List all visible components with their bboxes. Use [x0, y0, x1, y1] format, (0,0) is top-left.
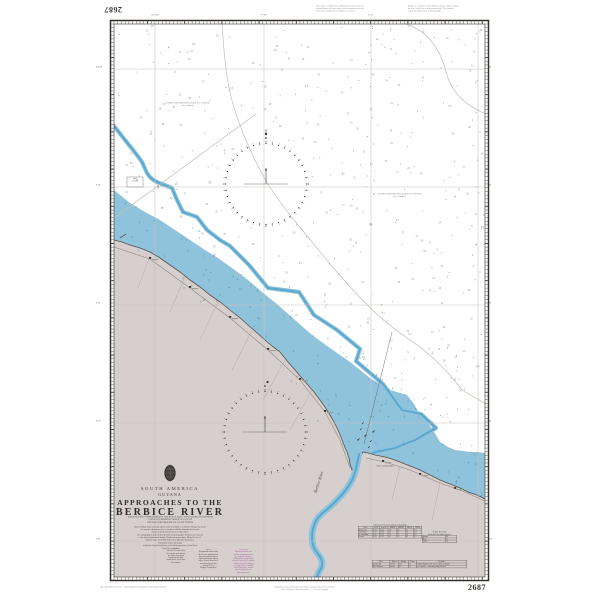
- svg-text:3: 3: [382, 379, 384, 382]
- svg-text:4: 4: [327, 337, 329, 340]
- svg-text:20: 20: [468, 289, 471, 292]
- svg-text:21: 21: [130, 153, 133, 156]
- svg-text:7: 7: [471, 445, 473, 448]
- svg-text:12: 12: [454, 379, 457, 382]
- svg-text:17: 17: [307, 46, 310, 49]
- svg-text:26: 26: [279, 125, 282, 128]
- svg-text:2: 2: [307, 122, 309, 125]
- svg-text:13: 13: [363, 358, 366, 361]
- svg-text:19: 19: [355, 208, 358, 211]
- svg-text:15: 15: [215, 210, 218, 213]
- svg-text:9: 9: [224, 150, 226, 153]
- svg-text:25: 25: [162, 123, 165, 126]
- svg-text:12: 12: [190, 50, 193, 53]
- sea-caution-label-1: BANKS AND DEPTHS LIABLE TO CHANGE(see Ca…: [153, 102, 223, 115]
- svg-text:28: 28: [265, 129, 268, 132]
- svg-text:10: 10: [180, 215, 183, 218]
- svg-text:20: 20: [269, 103, 272, 106]
- svg-text:23: 23: [448, 105, 451, 108]
- svg-text:1: 1: [207, 166, 209, 169]
- svg-text:15: 15: [384, 160, 387, 163]
- svg-text:20: 20: [252, 243, 255, 246]
- notes-general-block: NOTESNavigational marks withinthe river …: [192, 549, 224, 600]
- svg-text:4: 4: [332, 62, 334, 65]
- svg-text:15: 15: [150, 133, 153, 136]
- svg-text:11: 11: [473, 50, 476, 53]
- svg-text:24: 24: [274, 49, 277, 52]
- svg-text:4: 4: [330, 209, 332, 212]
- svg-text:2: 2: [216, 145, 218, 148]
- svg-text:12: 12: [370, 163, 373, 166]
- svg-text:11: 11: [146, 29, 149, 32]
- svg-text:13: 13: [230, 87, 233, 90]
- svg-text:19: 19: [355, 242, 358, 245]
- svg-text:24: 24: [429, 403, 432, 406]
- svg-text:3: 3: [313, 222, 315, 225]
- svg-text:9: 9: [331, 147, 333, 150]
- svg-text:13: 13: [202, 81, 205, 84]
- nautical-chart-photo: 1365161661044716244161962815142144215131…: [0, 0, 600, 600]
- royal-crest: [162, 463, 178, 488]
- svg-text:19: 19: [389, 129, 392, 132]
- graticule-label: 6°30′: [96, 184, 122, 190]
- svg-text:25: 25: [293, 231, 296, 234]
- svg-text:11: 11: [179, 51, 182, 54]
- chart-number-bottom-right: 2687: [468, 583, 486, 592]
- graticule-label: 57°20′: [251, 14, 277, 20]
- svg-text:23: 23: [483, 214, 486, 217]
- svg-text:18: 18: [469, 70, 472, 73]
- svg-text:15: 15: [213, 254, 216, 257]
- svg-text:10: 10: [208, 181, 211, 184]
- svg-text:25: 25: [316, 124, 319, 127]
- svg-text:2: 2: [278, 255, 280, 258]
- svg-text:28: 28: [328, 283, 331, 286]
- compass-rose-upper: [223, 137, 309, 227]
- svg-text:26: 26: [349, 238, 352, 241]
- svg-text:28: 28: [192, 43, 195, 46]
- svg-text:5: 5: [146, 109, 148, 112]
- svg-text:12: 12: [440, 265, 443, 268]
- svg-text:16: 16: [287, 57, 290, 60]
- svg-text:17: 17: [341, 91, 344, 94]
- notes-positions-block: POSITIONSPositions obtained fromsatellit…: [227, 549, 259, 600]
- chart-title-line1: APPROACHES TO THE: [110, 498, 230, 507]
- svg-text:25: 25: [130, 162, 133, 165]
- svg-text:3: 3: [423, 116, 425, 119]
- graticule-label: 6°40′N: [96, 66, 122, 72]
- svg-text:3: 3: [259, 64, 261, 67]
- svg-text:25: 25: [356, 128, 359, 131]
- svg-text:21: 21: [395, 267, 398, 270]
- svg-text:15: 15: [408, 333, 411, 336]
- svg-text:7: 7: [414, 398, 416, 401]
- svg-text:4: 4: [370, 44, 372, 47]
- svg-text:21: 21: [390, 102, 393, 105]
- svg-text:13: 13: [431, 331, 434, 334]
- svg-text:26: 26: [371, 74, 374, 77]
- svg-text:26: 26: [178, 94, 181, 97]
- svg-text:12: 12: [390, 339, 393, 342]
- town-name-label: New Amsterdam: [365, 465, 405, 471]
- svg-text:11: 11: [481, 226, 484, 229]
- svg-text:4: 4: [472, 254, 474, 257]
- graticule-label: 40′: [489, 66, 515, 72]
- svg-text:10: 10: [422, 30, 425, 33]
- fine-print-bottom-center: Reproduced from Admiralty Chart 2687 by …: [240, 586, 370, 599]
- svg-text:29: 29: [324, 293, 327, 296]
- svg-text:18: 18: [443, 359, 446, 362]
- svg-text:7: 7: [372, 293, 374, 296]
- svg-text:20: 20: [188, 58, 191, 61]
- svg-text:6: 6: [479, 271, 481, 274]
- svg-text:14: 14: [368, 51, 371, 54]
- svg-text:12: 12: [432, 277, 435, 280]
- svg-text:10: 10: [216, 34, 219, 37]
- sea-caution-label-2: BANKS AND DEPTHS LIABLE TO CHANGE(see Ca…: [365, 193, 435, 206]
- svg-text:10: 10: [301, 138, 304, 141]
- svg-text:29: 29: [398, 84, 401, 87]
- svg-text:21: 21: [369, 109, 372, 112]
- svg-text:1: 1: [456, 370, 458, 373]
- svg-text:29: 29: [347, 326, 350, 329]
- chart-map-graphics: 1365161661044716244161962815142144215131…: [0, 0, 600, 600]
- svg-text:14: 14: [453, 195, 456, 198]
- svg-text:4: 4: [401, 389, 403, 392]
- svg-text:15: 15: [125, 164, 128, 167]
- svg-text:6: 6: [473, 356, 475, 359]
- svg-text:21: 21: [422, 77, 425, 80]
- graticule-label: 57°30′W: [142, 14, 168, 20]
- graticule-label: 6°N: [489, 538, 515, 544]
- svg-text:13: 13: [353, 177, 356, 180]
- svg-text:21: 21: [474, 213, 477, 216]
- svg-text:7: 7: [382, 34, 384, 37]
- svg-text:27: 27: [429, 289, 432, 292]
- svg-text:6: 6: [413, 166, 415, 169]
- svg-text:25: 25: [438, 287, 441, 290]
- svg-text:26: 26: [421, 239, 424, 242]
- svg-text:4: 4: [326, 90, 328, 93]
- svg-text:28: 28: [201, 233, 204, 236]
- svg-text:21: 21: [458, 188, 461, 191]
- svg-text:10: 10: [350, 205, 353, 208]
- svg-text:5: 5: [362, 211, 364, 214]
- graticule-label: 20′: [489, 302, 515, 308]
- svg-text:23: 23: [299, 262, 302, 265]
- svg-text:22: 22: [407, 167, 410, 170]
- svg-text:26: 26: [264, 86, 267, 89]
- svg-text:5: 5: [432, 351, 434, 354]
- svg-text:26: 26: [481, 153, 484, 156]
- svg-text:13: 13: [470, 317, 473, 320]
- graticule-label: 10′: [489, 420, 515, 426]
- svg-text:5: 5: [410, 136, 412, 139]
- svg-text:14: 14: [446, 37, 449, 40]
- svg-text:23: 23: [477, 365, 480, 368]
- svg-text:13: 13: [454, 356, 457, 359]
- svg-text:26: 26: [252, 62, 255, 65]
- svg-text:23: 23: [231, 148, 234, 151]
- svg-text:29: 29: [358, 357, 361, 360]
- svg-text:17: 17: [390, 48, 393, 51]
- svg-text:4: 4: [305, 85, 307, 88]
- title-region: SOUTH AMERICA: [120, 486, 220, 491]
- svg-text:5: 5: [420, 41, 422, 44]
- svg-text:28: 28: [468, 126, 471, 129]
- bar-depths-table: Berbice River BarPredicted least depths …: [422, 531, 505, 559]
- svg-text:21: 21: [361, 281, 364, 284]
- svg-text:4: 4: [433, 253, 435, 256]
- svg-text:13: 13: [139, 116, 142, 119]
- svg-text:17: 17: [415, 235, 418, 238]
- svg-text:23: 23: [151, 25, 154, 28]
- svg-text:29: 29: [285, 272, 288, 275]
- svg-text:4: 4: [149, 162, 151, 165]
- svg-text:6: 6: [407, 351, 409, 354]
- svg-text:21: 21: [462, 166, 465, 169]
- svg-text:21: 21: [317, 73, 320, 76]
- tide-remarks-table: PlaceDatumSpringsNeapsRemarksBerbice Bar…: [372, 560, 583, 578]
- svg-text:27: 27: [183, 193, 186, 196]
- svg-text:20: 20: [223, 233, 226, 236]
- svg-text:24: 24: [385, 79, 388, 82]
- svg-text:18: 18: [423, 250, 426, 253]
- svg-text:19: 19: [302, 58, 305, 61]
- graticule-label: 6°00′: [96, 538, 122, 544]
- svg-text:6: 6: [472, 265, 474, 268]
- svg-text:17: 17: [428, 242, 431, 245]
- svg-text:23: 23: [350, 59, 353, 62]
- svg-text:15: 15: [363, 151, 366, 154]
- svg-text:13: 13: [428, 348, 431, 351]
- svg-text:17: 17: [275, 116, 278, 119]
- svg-text:22: 22: [367, 317, 370, 320]
- svg-text:16: 16: [442, 326, 445, 329]
- svg-text:13: 13: [466, 193, 469, 196]
- svg-text:16: 16: [451, 132, 454, 135]
- svg-text:12: 12: [295, 314, 298, 317]
- svg-text:24: 24: [463, 350, 466, 353]
- svg-text:17: 17: [342, 204, 345, 207]
- svg-text:17: 17: [394, 377, 397, 380]
- svg-text:11: 11: [320, 192, 323, 195]
- svg-text:8: 8: [174, 71, 176, 74]
- notes-caution-block: CAUTIONMariners are warned thatthe outer…: [162, 548, 190, 592]
- svg-text:7: 7: [168, 46, 170, 49]
- svg-text:2: 2: [292, 310, 294, 313]
- svg-text:5: 5: [250, 227, 252, 230]
- svg-text:8: 8: [289, 286, 291, 289]
- title-country: GUYANA: [120, 492, 220, 497]
- svg-text:21: 21: [125, 191, 128, 194]
- svg-text:15: 15: [350, 122, 353, 125]
- svg-text:9: 9: [397, 171, 399, 174]
- svg-text:9: 9: [413, 357, 415, 360]
- svg-text:5: 5: [346, 356, 348, 359]
- svg-text:23: 23: [411, 278, 414, 281]
- svg-text:1: 1: [136, 71, 138, 74]
- svg-text:5: 5: [391, 348, 393, 351]
- svg-text:4: 4: [392, 387, 394, 390]
- svg-text:22: 22: [376, 38, 379, 41]
- svg-text:1: 1: [465, 212, 467, 215]
- svg-text:11: 11: [175, 183, 178, 186]
- svg-text:16: 16: [263, 108, 266, 111]
- svg-text:16: 16: [276, 45, 279, 48]
- svg-text:10: 10: [170, 197, 173, 200]
- svg-text:4: 4: [472, 119, 474, 122]
- graticule-label: 57°10′: [358, 14, 384, 20]
- svg-text:19: 19: [213, 246, 216, 249]
- svg-text:15: 15: [314, 141, 317, 144]
- svg-text:26: 26: [325, 212, 328, 215]
- svg-text:21: 21: [361, 353, 364, 356]
- svg-text:26: 26: [188, 97, 191, 100]
- svg-text:24: 24: [342, 172, 345, 175]
- svg-text:20: 20: [366, 322, 369, 325]
- svg-text:23: 23: [179, 124, 182, 127]
- graticule-label: 6°20′: [96, 302, 122, 308]
- svg-text:1: 1: [373, 143, 375, 146]
- svg-text:27: 27: [401, 231, 404, 234]
- svg-text:21: 21: [471, 65, 474, 68]
- graticule-label: 6°10′: [96, 420, 122, 426]
- svg-text:11: 11: [438, 348, 441, 351]
- spoil-ground-label: SpoilGround: [127, 178, 143, 191]
- svg-text:13: 13: [396, 219, 399, 222]
- svg-text:13: 13: [282, 281, 285, 284]
- svg-text:4: 4: [390, 29, 392, 32]
- svg-text:3: 3: [347, 269, 349, 272]
- svg-text:14: 14: [438, 221, 441, 224]
- svg-text:28: 28: [205, 203, 208, 206]
- svg-text:6: 6: [471, 225, 473, 228]
- svg-text:7: 7: [373, 170, 375, 173]
- svg-text:9: 9: [367, 365, 369, 368]
- svg-text:10: 10: [420, 172, 423, 175]
- svg-text:25: 25: [390, 142, 393, 145]
- chart-number-top-left: 2687: [104, 5, 122, 14]
- svg-text:21: 21: [441, 302, 444, 305]
- graticule-label: 30′: [489, 184, 515, 190]
- svg-text:4: 4: [460, 444, 462, 447]
- svg-text:24: 24: [398, 281, 401, 284]
- svg-text:1: 1: [469, 228, 471, 231]
- fine-print-top-right-2: Depths are reduced to Chart Datum, which…: [408, 5, 490, 24]
